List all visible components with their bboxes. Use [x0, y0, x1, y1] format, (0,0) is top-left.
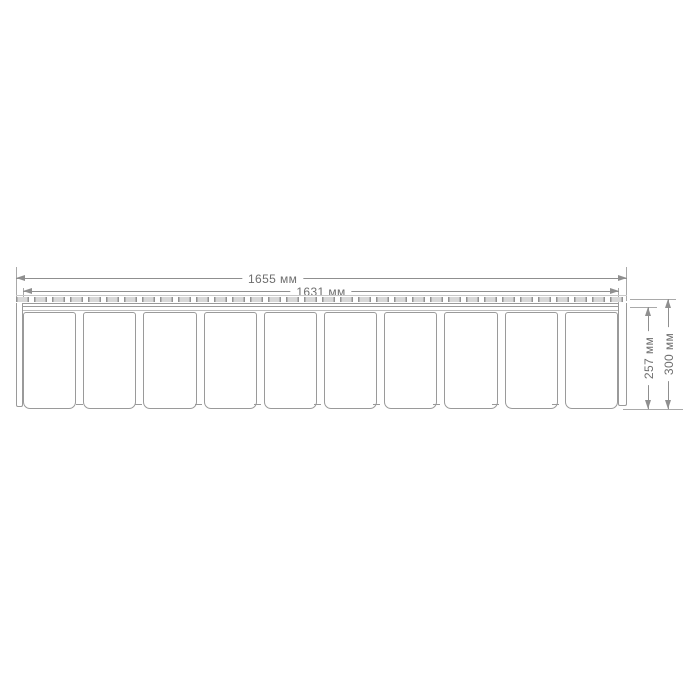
hem-shadow-line-1 [16, 306, 627, 307]
plank [264, 312, 317, 409]
plank [565, 312, 618, 409]
plank [505, 312, 558, 409]
dimension-face-width: 1631 мм [23, 291, 619, 292]
plank [143, 312, 196, 409]
arrowhead-down-icon [665, 400, 671, 409]
dimension-label-overall-width: 1655 мм [242, 272, 303, 286]
dimension-overall-height: 300 мм [668, 299, 669, 409]
arrowhead-right-icon [618, 275, 627, 281]
plank-joint-bridge [314, 404, 321, 405]
plank-row [23, 312, 618, 409]
nail-hem-top-edge [16, 295, 627, 296]
arrowhead-left-icon [23, 288, 32, 294]
plank-joint-bridge [195, 404, 202, 405]
arrowhead-right-icon [610, 288, 619, 294]
plank-joint-bridge [76, 404, 83, 405]
dimension-label-overall-height: 300 мм [662, 327, 676, 381]
nail-hem-bottom-edge [16, 303, 627, 304]
dimension-label-face-height: 257 мм [642, 331, 656, 385]
plank-joint-bridge [552, 404, 559, 405]
arrowhead-up-icon [665, 299, 671, 308]
dimension-overall-width: 1655 мм [16, 278, 627, 279]
plank-joint-bridge [135, 404, 142, 405]
plank-joint-bridge [373, 404, 380, 405]
panel-left-end-cap [16, 303, 23, 407]
extension-line-bottom [623, 409, 683, 410]
plank [444, 312, 497, 409]
dimension-face-height: 257 мм [648, 307, 649, 409]
plank [83, 312, 136, 409]
plank [23, 312, 76, 409]
plank [204, 312, 257, 409]
arrowhead-left-icon [16, 275, 25, 281]
hem-shadow-line-2 [16, 310, 627, 311]
panel-right-end-cap [618, 303, 627, 406]
drawing-canvas: 1655 мм 1631 мм 257 мм 300 мм [0, 0, 700, 700]
arrowhead-down-icon [645, 400, 651, 409]
plank-joint-bridge [433, 404, 440, 405]
plank [384, 312, 437, 409]
extension-line-face-top [630, 307, 657, 308]
plank [324, 312, 377, 409]
plank-joint-bridge [254, 404, 261, 405]
plank-joint-bridge [492, 404, 499, 405]
arrowhead-up-icon [645, 307, 651, 316]
nail-slot-row [16, 297, 627, 302]
